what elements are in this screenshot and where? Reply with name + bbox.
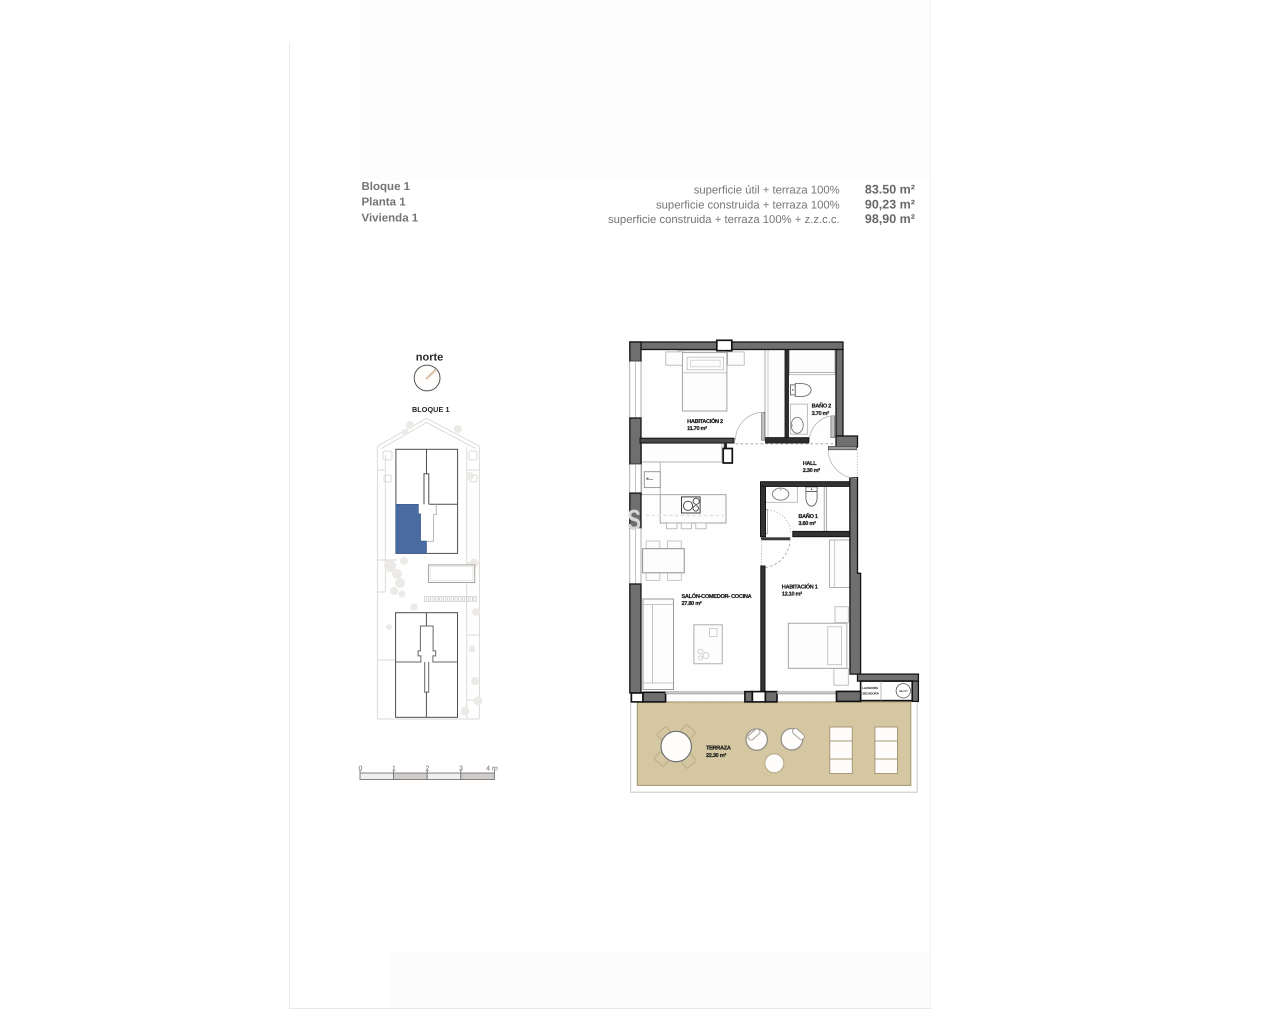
svg-text:0: 0 (359, 766, 363, 773)
svg-text:22.30 m²: 22.30 m² (706, 753, 726, 759)
svg-text:Vivienda 1: Vivienda 1 (362, 212, 419, 224)
svg-text:4 m: 4 m (486, 766, 498, 773)
svg-text:BAÑO 1: BAÑO 1 (798, 513, 818, 520)
svg-text:SECADORA: SECADORA (862, 692, 879, 696)
svg-text:3.70 m²: 3.70 m² (812, 411, 830, 417)
svg-text:LAVADORA: LAVADORA (862, 686, 879, 690)
svg-text:2.30 m²: 2.30 m² (803, 468, 821, 474)
svg-text:11.70 m²: 11.70 m² (687, 426, 707, 432)
svg-text:83.50 m²: 83.50 m² (865, 183, 915, 197)
svg-text:27.80 m²: 27.80 m² (682, 601, 702, 607)
svg-text:superficie construida + terraz: superficie construida + terraza 100% (656, 199, 840, 211)
svg-text:BLOQUE 1: BLOQUE 1 (412, 405, 450, 414)
svg-text:HALL: HALL (803, 461, 818, 467)
svg-text:12.10 m²: 12.10 m² (782, 592, 802, 598)
svg-text:superficie útil + terraza 100%: superficie útil + terraza 100% (694, 185, 840, 197)
svg-text:TERRAZA: TERRAZA (706, 746, 731, 752)
svg-text:S: S (627, 504, 641, 536)
svg-text:HABITACIÓN 2: HABITACIÓN 2 (687, 418, 723, 425)
svg-text:3.60 m²: 3.60 m² (798, 521, 816, 527)
svg-text:norte: norte (416, 352, 444, 364)
svg-text:Bloque 1: Bloque 1 (362, 181, 411, 193)
svg-text:superficie construida + terraz: superficie construida + terraza 100% + z… (608, 214, 840, 226)
svg-text:90,23 m²: 90,23 m² (865, 197, 915, 211)
svg-text:98,90 m²: 98,90 m² (865, 212, 915, 226)
svg-text:HABITACIÓN 1: HABITACIÓN 1 (782, 583, 818, 590)
svg-text:Planta 1: Planta 1 (362, 197, 407, 209)
svg-text:NE.CO: NE.CO (899, 690, 907, 693)
svg-text:SALÓN-COMEDOR- COCINA: SALÓN-COMEDOR- COCINA (682, 593, 752, 600)
svg-text:BAÑO 2: BAÑO 2 (812, 403, 832, 410)
